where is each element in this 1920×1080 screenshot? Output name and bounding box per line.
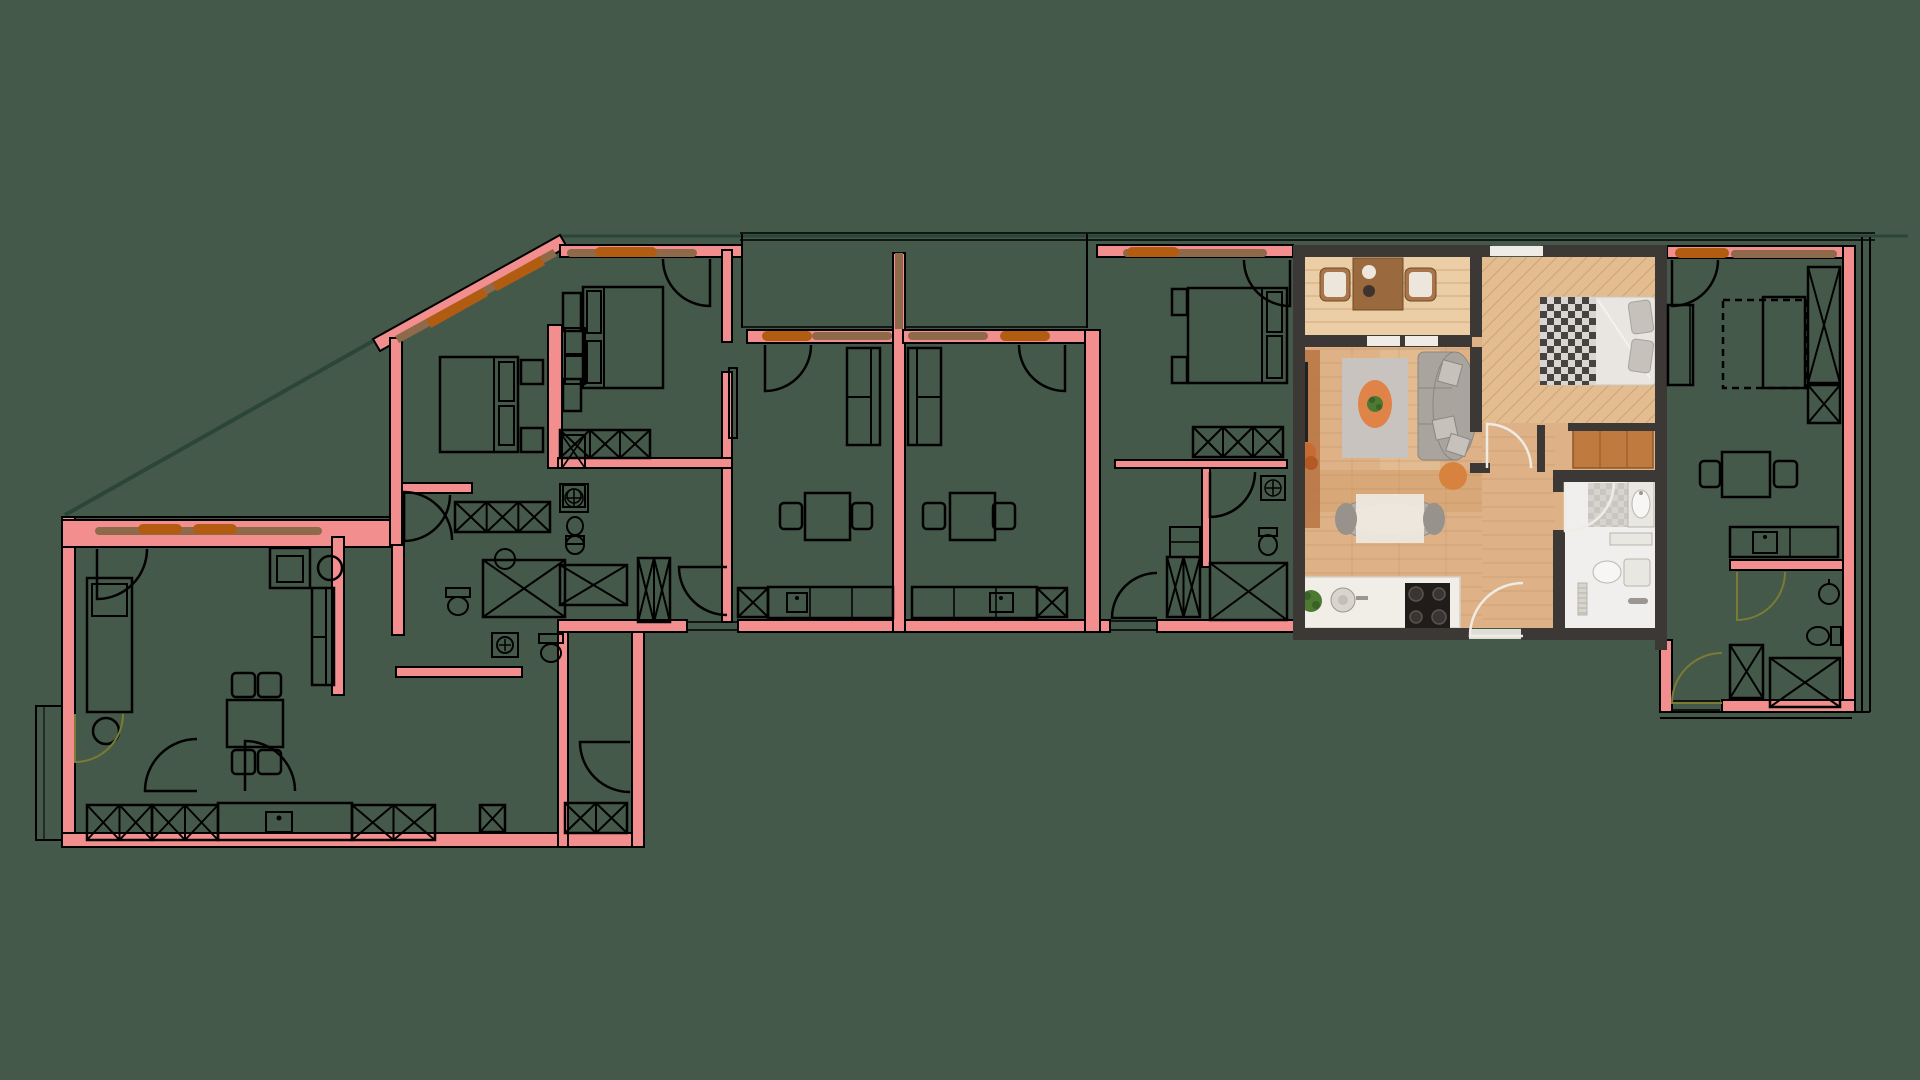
walls-pink-rect — [396, 667, 522, 677]
cad-furniture-circle — [1763, 535, 1767, 539]
rendered-walls-rect — [1553, 470, 1667, 482]
rendered-furniture-rect — [1628, 598, 1648, 604]
walls-pink-rect — [1843, 246, 1855, 712]
walls-pink-rect — [632, 632, 644, 847]
rendered-walls-rect — [1521, 628, 1667, 640]
rendered-walls-rect — [1655, 245, 1667, 650]
rendered-walls-rect — [1568, 423, 1655, 431]
rendered-walls-rect — [1293, 245, 1305, 640]
walls-pink-rect — [1115, 460, 1287, 468]
window-sills-rect — [908, 332, 988, 340]
rendered-furniture-rect — [1624, 559, 1650, 586]
rendered-walls-rect — [1293, 628, 1469, 640]
rendered-furniture-circle — [1312, 601, 1320, 609]
window-sills-rect — [1127, 247, 1179, 257]
bed-throw — [1540, 297, 1596, 385]
floor-plan-svg: Residential building floor plan with one… — [0, 0, 1920, 1080]
walls-pink-rect — [738, 620, 1110, 632]
rendered-walls-rect — [1541, 245, 1667, 257]
rendered-furniture-ellipse — [1335, 503, 1357, 535]
pass-through-window — [1405, 336, 1438, 346]
rendered-walls-rect — [1470, 257, 1482, 337]
rendered-walls-rect — [1537, 425, 1545, 472]
walls-pink-rect — [722, 372, 732, 622]
rendered-furniture-circle — [1369, 397, 1375, 403]
rendered-walls-rect — [1470, 347, 1482, 432]
rendered-furniture-circle — [1410, 611, 1422, 623]
pass-through-window — [1367, 336, 1400, 346]
dining-table — [1353, 258, 1403, 310]
walls-pink-rect — [1085, 330, 1100, 632]
walls-pink-rect — [558, 632, 568, 847]
rendered-furniture-rect — [1409, 272, 1432, 297]
walls-pink-rect — [1660, 640, 1672, 712]
rendered-furniture-rect — [1628, 339, 1654, 374]
window-sills-rect — [1675, 248, 1729, 258]
window-sills-rect — [1731, 250, 1837, 258]
window-sills-rect — [762, 331, 812, 341]
rendered-furniture-circle — [1409, 587, 1423, 601]
window-sills-rect — [138, 524, 182, 534]
walls-pink-rect — [390, 338, 402, 545]
floor-plan-canvas: Residential building floor plan with one… — [0, 0, 1920, 1080]
cad-furniture-circle — [795, 596, 799, 600]
rendered-furniture-rect — [1610, 533, 1652, 545]
rendered-furniture-rect — [1324, 272, 1346, 297]
dresser — [1573, 430, 1653, 468]
window-sills-rect — [1000, 331, 1050, 341]
window-sills-rect — [812, 332, 892, 340]
window-sills-rect — [895, 253, 903, 329]
window-sills-rect — [193, 524, 237, 534]
rendered-furniture-rect — [1628, 300, 1654, 335]
rendered-walls-rect — [1553, 482, 1565, 492]
rendered-walls-rect — [1553, 530, 1565, 628]
rendered-furniture-circle — [1304, 456, 1318, 470]
cad-furniture-circle — [999, 596, 1003, 600]
toilet-rendered — [1593, 561, 1621, 583]
balcony-threshold — [1490, 246, 1543, 256]
rendered-furniture-ellipse — [1423, 503, 1445, 535]
window-sills-rect — [595, 247, 657, 257]
rendered-furniture-circle — [1433, 588, 1445, 600]
rendered-furniture-circle — [1639, 491, 1643, 495]
walls-pink-rect — [62, 517, 75, 847]
cad-furniture-circle — [277, 816, 282, 821]
table-runner — [1356, 494, 1424, 543]
rendered-furniture-circle — [1338, 595, 1348, 605]
rendered-furniture-circle — [1432, 610, 1446, 624]
pouf — [1439, 462, 1467, 490]
walls-pink-rect — [722, 250, 732, 342]
walls-pink-rect — [1730, 560, 1843, 570]
entry-threshold — [1469, 629, 1521, 639]
rendered-furniture-circle — [1363, 285, 1375, 297]
walls-pink-rect — [1157, 620, 1300, 632]
plant-on-rug — [1367, 396, 1383, 412]
rendered-furniture-circle — [1362, 265, 1376, 279]
rendered-walls-rect — [1293, 245, 1492, 257]
rendered-furniture-circle — [1376, 404, 1382, 410]
rendered-furniture-rect — [1356, 596, 1368, 600]
